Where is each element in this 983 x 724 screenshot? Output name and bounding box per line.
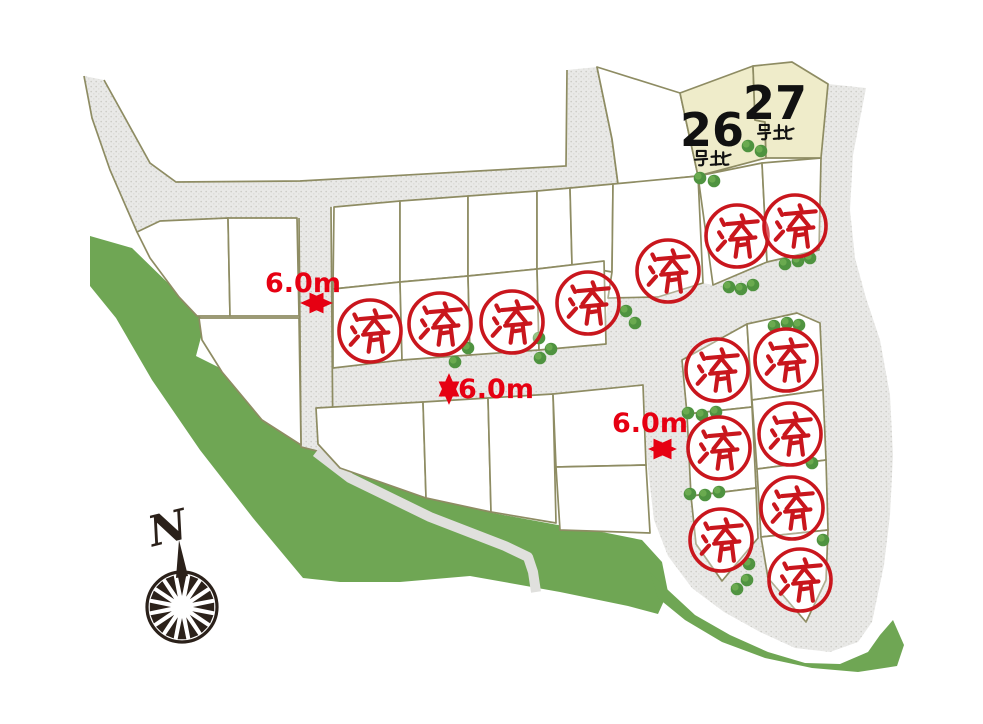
parcel (570, 184, 613, 272)
bush-icon (779, 258, 792, 271)
sold-stamp-icon (764, 195, 826, 257)
parcel (468, 191, 537, 276)
sold-stamp-icon (690, 509, 752, 571)
subdivision-lot-map: 6.0m 6.0m 6.0m 26 27 N (0, 0, 983, 724)
sold-stamp-icon (759, 403, 821, 465)
lot-27-label[interactable]: 27 (743, 76, 807, 139)
bush-icon (694, 172, 707, 185)
sold-stamp-icon (481, 291, 543, 353)
bush-icon (817, 534, 830, 547)
bush-icon (699, 489, 712, 502)
dimension-label-middle-road: 6.0m (458, 374, 534, 405)
parcel (423, 398, 491, 512)
parcel (333, 201, 400, 289)
sold-stamp-icon (706, 205, 768, 267)
bush-icon (731, 583, 744, 596)
sold-stamp-icon (339, 300, 401, 362)
lot-26-number[interactable]: 26 (680, 103, 744, 157)
sold-stamp-icon (409, 293, 471, 355)
bush-icon (755, 145, 768, 158)
bush-icon (708, 175, 721, 188)
sold-stamp-icon (769, 549, 831, 611)
sold-stamp-icon (686, 339, 748, 401)
bush-icon (723, 281, 736, 294)
bush-icon (747, 279, 760, 292)
bush-icon (684, 488, 697, 501)
sold-stamp-icon (761, 477, 823, 539)
sold-stamp-icon (637, 240, 699, 302)
compass-north-label: N (141, 499, 194, 557)
parcel (488, 394, 556, 523)
sold-stamp-icon (557, 272, 619, 334)
parcel (537, 188, 572, 269)
lot-27-number[interactable]: 27 (743, 76, 807, 130)
bush-icon (534, 352, 547, 365)
dimension-label-east-road: 6.0m (612, 408, 688, 439)
parcel (556, 465, 650, 533)
parcel (400, 196, 468, 282)
bush-icon (735, 283, 748, 296)
bush-icon (741, 574, 754, 587)
bush-icon (629, 317, 642, 330)
bush-icon (713, 486, 726, 499)
dimension-label-west-road: 6.0m (265, 268, 341, 299)
parcel (228, 218, 299, 316)
bush-icon (620, 305, 633, 318)
lot-26-label[interactable]: 26 (680, 103, 744, 165)
road-edge-line (104, 70, 567, 182)
sold-stamp-icon (755, 329, 817, 391)
bush-icon (545, 343, 558, 356)
lot-map-canvas: 6.0m 6.0m 6.0m 26 27 N (0, 0, 983, 724)
bush-icon (449, 356, 462, 369)
sold-stamp-icon (688, 417, 750, 479)
